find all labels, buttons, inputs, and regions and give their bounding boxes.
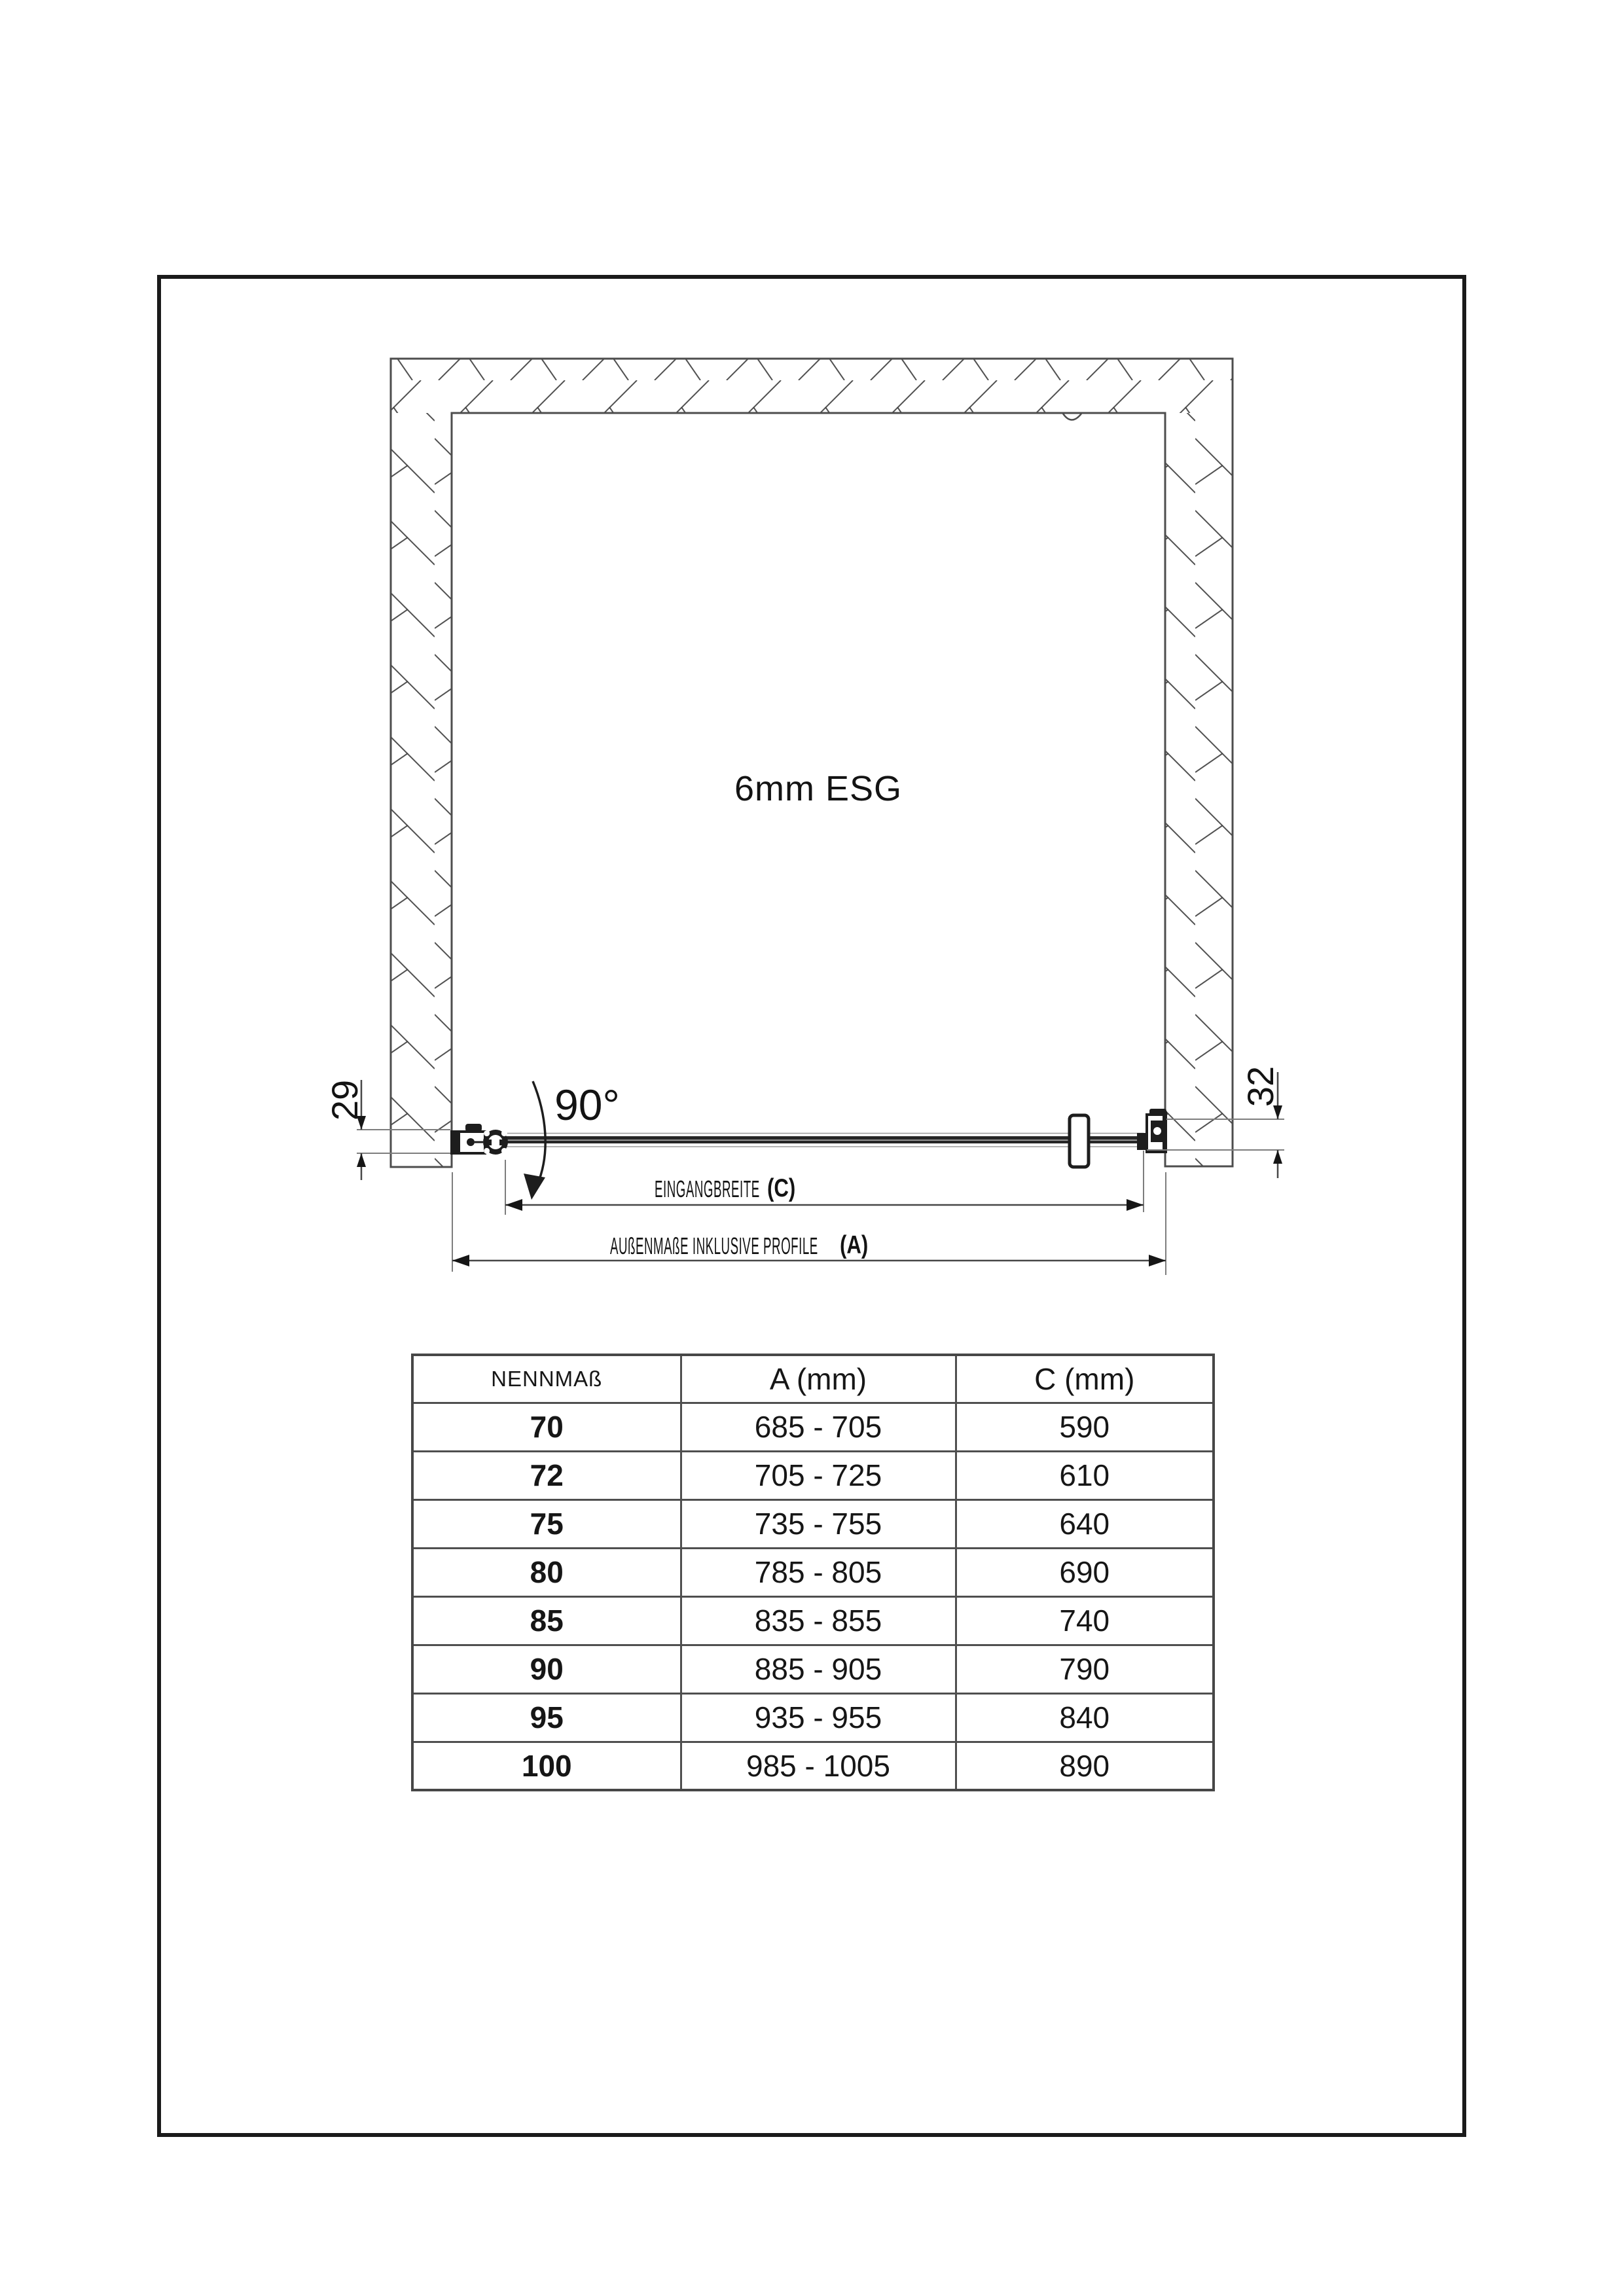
c-mm-cell: 790	[956, 1645, 1214, 1693]
c-mm-cell: 690	[956, 1548, 1214, 1596]
a-mm-cell: 685 - 705	[681, 1403, 956, 1451]
door-handle-knob	[1070, 1115, 1089, 1167]
a-mm-cell: 705 - 725	[681, 1451, 956, 1499]
entry-width-dimension-label: EINGANGBREITE	[655, 1177, 760, 1201]
door-pivot-hinge	[450, 1124, 508, 1155]
header-c-mm: C (mm)	[956, 1355, 1214, 1403]
nennmass-cell: 85	[412, 1596, 681, 1645]
nennmass-cell: 70	[412, 1403, 681, 1451]
table-row: 72705 - 725610	[412, 1451, 1214, 1499]
size-table-header-row: NENNMAß A (mm) C (mm)	[412, 1355, 1214, 1403]
header-a-mm: A (mm)	[681, 1355, 956, 1403]
table-row: 75735 - 755640	[412, 1499, 1214, 1548]
c-mm-cell: 640	[956, 1499, 1214, 1548]
door-swing-angle-label: 90°	[554, 1083, 620, 1126]
a-mm-cell: 735 - 755	[681, 1499, 956, 1548]
table-row: 70685 - 705590	[412, 1403, 1214, 1451]
table-row: 90885 - 905790	[412, 1645, 1214, 1693]
dimension-outer-width-a	[452, 1172, 1166, 1275]
table-row: 95935 - 955840	[412, 1693, 1214, 1742]
table-row: 100985 - 1005890	[412, 1742, 1214, 1790]
header-nennmass: NENNMAß	[412, 1355, 681, 1403]
a-mm-cell: 935 - 955	[681, 1693, 956, 1742]
right-profile-dimension-label: 32	[1242, 1066, 1279, 1107]
technical-drawing	[0, 0, 1624, 2296]
nennmass-cell: 100	[412, 1742, 681, 1790]
glass-type-label: 6mm ESG	[734, 771, 902, 806]
a-mm-cell: 885 - 905	[681, 1645, 956, 1693]
wall-profile-right	[1137, 1109, 1167, 1153]
nennmass-cell: 95	[412, 1693, 681, 1742]
c-mm-cell: 740	[956, 1596, 1214, 1645]
nennmass-cell: 72	[412, 1451, 681, 1499]
c-mm-cell: 890	[956, 1742, 1214, 1790]
table-row: 85835 - 855740	[412, 1596, 1214, 1645]
c-mm-cell: 610	[956, 1451, 1214, 1499]
entry-width-dimension-ref: (C)	[767, 1175, 795, 1201]
outer-width-dimension-label: AUßENMAßE INKLUSIVE PROFILE	[610, 1234, 818, 1258]
outer-width-dimension-ref: (A)	[840, 1232, 868, 1258]
niche-walls	[391, 359, 1233, 1167]
nennmass-cell: 90	[412, 1645, 681, 1693]
a-mm-cell: 785 - 805	[681, 1548, 956, 1596]
a-mm-cell: 985 - 1005	[681, 1742, 956, 1790]
table-row: 80785 - 805690	[412, 1548, 1214, 1596]
size-table-body: 70685 - 70559072705 - 72561075735 - 7556…	[412, 1403, 1214, 1790]
c-mm-cell: 840	[956, 1693, 1214, 1742]
dimension-entry-width-c	[505, 1151, 1144, 1215]
glass-door-panel	[505, 1134, 1144, 1147]
size-table: NENNMAß A (mm) C (mm) 70685 - 7055907270…	[411, 1354, 1215, 1791]
nennmass-cell: 80	[412, 1548, 681, 1596]
left-profile-dimension-label: 29	[327, 1080, 363, 1121]
page: 6mm ESG 90° 29 32 EINGANGBREITE (C) AUßE…	[0, 0, 1624, 2296]
c-mm-cell: 590	[956, 1403, 1214, 1451]
a-mm-cell: 835 - 855	[681, 1596, 956, 1645]
nennmass-cell: 75	[412, 1499, 681, 1548]
